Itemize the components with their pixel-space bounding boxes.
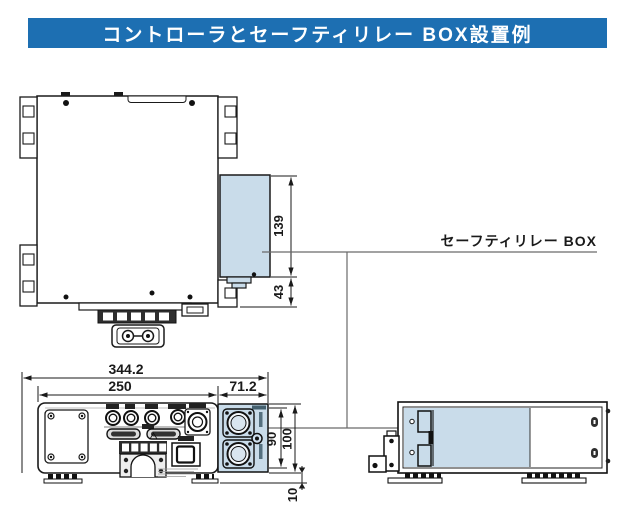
screw (63, 100, 69, 106)
vertical-label-strip (259, 412, 263, 427)
screw (252, 272, 256, 276)
relay-connector-upper (223, 409, 254, 437)
dim-relay-box-height-139: 139 (271, 176, 297, 277)
left-access-panel (45, 410, 88, 463)
dim-label-43: 43 (271, 285, 286, 299)
mounting-bracket-right-top (218, 97, 237, 158)
dim-controller-width-250: 250 (40, 378, 217, 395)
dim-overall-width-344-2: 344.2 (24, 361, 267, 378)
side-front-attachments (369, 431, 399, 472)
dim-relay-box-width-71-2: 71.2 (220, 378, 267, 395)
dim-label-10: 10 (285, 488, 300, 502)
installation-drawing: 139 43 セーフティリレー BOX 344.2 (0, 0, 634, 510)
top-tab (114, 92, 123, 96)
safety-relay-box-label: セーフティリレー BOX (440, 233, 597, 249)
vertical-label-strip (259, 444, 263, 459)
dim-label-344-2: 344.2 (108, 361, 143, 377)
dim-label-139: 139 (271, 215, 286, 237)
bottom-flange (79, 303, 191, 310)
mounting-bracket-left-bottom (20, 245, 37, 306)
cable-clamp (112, 325, 164, 347)
screw (64, 295, 69, 300)
screw (188, 295, 193, 300)
safety-relay-box-callout: セーフティリレー BOX (262, 233, 597, 428)
terminal-block-top-view (98, 310, 176, 323)
safety-relay-box-top-view (220, 175, 270, 277)
large-round-connector (185, 409, 210, 435)
side-view-feet (388, 476, 586, 484)
controller-body-top (37, 96, 218, 303)
dsub-connector (147, 429, 180, 439)
screw (150, 291, 155, 296)
dim-label-71-2: 71.2 (229, 378, 256, 394)
mounting-bracket-left-top (20, 97, 37, 158)
controller-side-view (369, 402, 610, 483)
relay-connector-lower (223, 440, 254, 468)
dim-label-100: 100 (280, 428, 295, 450)
side-connector-top-view (182, 304, 208, 316)
page: コントローラとセーフティリレー BOX設置例 (0, 0, 634, 510)
handle-recess (128, 96, 186, 103)
dim-label-90: 90 (264, 432, 279, 446)
controller-front-view: 344.2 250 71.2 (22, 361, 307, 502)
dim-label-250: 250 (108, 378, 132, 394)
dsub-connector (107, 429, 140, 439)
screw (189, 100, 195, 106)
top-tab (61, 92, 70, 96)
controller-top-view (20, 92, 270, 347)
safety-relay-box-front-view (218, 404, 268, 472)
